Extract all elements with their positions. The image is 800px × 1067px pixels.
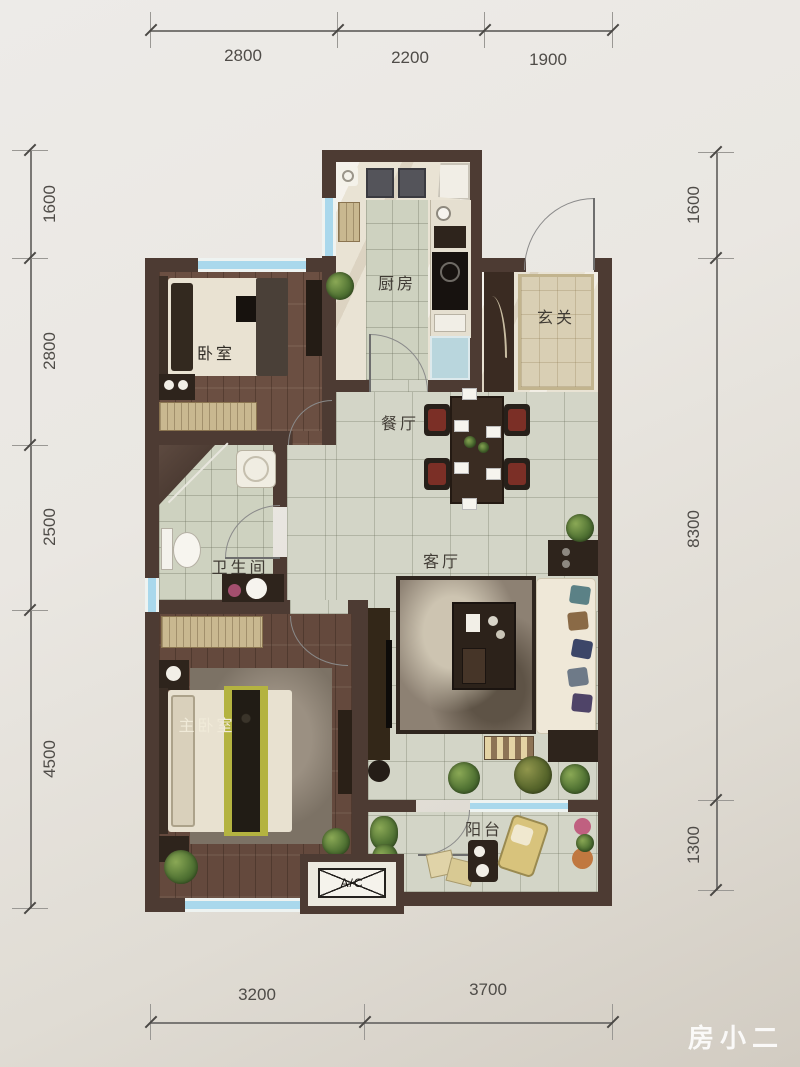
- dim-tick: [12, 610, 48, 611]
- toilet-bowl: [173, 532, 201, 568]
- side-table-knob: [562, 548, 570, 556]
- place-setting: [462, 388, 477, 400]
- stove-burner: [366, 168, 394, 198]
- sofa-pillow: [567, 667, 589, 688]
- dim-tick: [484, 12, 485, 48]
- toilet-tank: [161, 528, 173, 570]
- bedroom-window: [198, 258, 306, 272]
- dim-bottom-2: 3700: [469, 980, 507, 1000]
- watermark: 房小二: [688, 1018, 784, 1055]
- dim-left-3: 2500: [40, 508, 60, 546]
- master-plant: [322, 828, 350, 856]
- ac-unit-label: A/C: [340, 876, 363, 890]
- master-bed-headboard: [159, 688, 168, 834]
- dim-tick: [12, 150, 48, 151]
- balcony-cup: [476, 864, 489, 877]
- dim-tick: [698, 258, 734, 259]
- dim-right-1: 1600: [684, 186, 704, 224]
- master-door-threshold: [290, 600, 348, 614]
- nightstand-lamp: [166, 666, 181, 681]
- nightstand-cup: [178, 380, 188, 390]
- place-setting: [486, 468, 501, 480]
- room-label-dining: 餐厅: [381, 410, 419, 434]
- sofa-side-table-bottom: [548, 730, 598, 762]
- master-plant: [164, 850, 198, 884]
- sofa-pillow: [567, 611, 589, 631]
- wall-balcony-top-right: [568, 800, 598, 812]
- balcony-plant-right: [576, 834, 594, 852]
- side-table-knob: [562, 560, 570, 568]
- dim-left-2: 2800: [40, 332, 60, 370]
- bedroom-tv-panel: [306, 280, 322, 356]
- dim-bottom-1: 3200: [238, 985, 276, 1005]
- dim-tick: [12, 445, 48, 446]
- kitchen-cart: [338, 202, 360, 242]
- balcony-flower-pink: [574, 818, 591, 835]
- dim-line-left: [30, 150, 32, 908]
- master-runner-pattern: [232, 690, 260, 832]
- bathroom-basin-bowl: [243, 456, 269, 482]
- kitchen-window: [322, 198, 336, 256]
- stove-burner: [398, 168, 426, 198]
- dim-tick: [150, 12, 151, 48]
- coffee-table-decor: [496, 630, 505, 639]
- sofa-side-table-top: [548, 540, 598, 576]
- kitchen-sink-circle: [436, 206, 451, 221]
- dining-table-plant: [478, 442, 489, 453]
- dim-line-bottom: [150, 1022, 612, 1024]
- room-label-kitchen: 厨房: [378, 270, 416, 294]
- dim-top-3: 1900: [529, 50, 567, 70]
- bedroom-wardrobe: [159, 402, 257, 431]
- dim-right-3: 1300: [684, 826, 704, 864]
- sofa-pillow: [571, 638, 594, 659]
- dim-tick: [337, 12, 338, 48]
- dining-chair: [504, 404, 530, 436]
- master-tv-cabinet: [338, 710, 352, 794]
- wall-master-top-left: [145, 600, 290, 614]
- coffee-table-decor: [488, 616, 498, 626]
- wall-kitchen-top: [322, 150, 482, 162]
- dim-line-top: [150, 30, 612, 32]
- bedroom-bed-deco: [236, 296, 256, 322]
- room-label-bedroom: 卧室: [197, 340, 235, 364]
- coffee-table-inset: [462, 648, 486, 684]
- bathroom-window: [145, 578, 159, 612]
- dim-left-4: 4500: [40, 740, 60, 778]
- dining-chair: [504, 458, 530, 490]
- floor-vase: [368, 760, 390, 782]
- dim-right-2: 8300: [684, 510, 704, 548]
- dim-tick: [698, 890, 734, 891]
- dining-table-plant: [464, 436, 476, 448]
- kitchen-mat: [430, 336, 470, 380]
- balcony-window: [470, 800, 568, 812]
- dim-top-1: 2800: [224, 46, 262, 66]
- dim-tick: [12, 258, 48, 259]
- wall-kitchen-bottom-left: [336, 380, 370, 392]
- cooktop-pot: [440, 262, 460, 282]
- sofa-pillow: [569, 585, 591, 606]
- living-plant: [514, 756, 552, 794]
- balcony-cup: [474, 846, 485, 857]
- entry-door-leaf: [593, 198, 595, 270]
- master-bedroom-window: [185, 898, 303, 912]
- dim-left-1: 1600: [40, 185, 60, 223]
- wall-kitchen-right: [470, 150, 482, 272]
- entry-door-arc: [524, 198, 594, 270]
- room-label-bathroom: 卫生间: [211, 554, 268, 578]
- vanity-sink: [246, 578, 267, 599]
- bedroom-plant: [326, 272, 354, 300]
- dim-tick: [612, 1004, 613, 1040]
- wall-balcony-top-left: [352, 800, 416, 812]
- sofa-pillow: [571, 693, 593, 713]
- bedroom-pillows: [171, 283, 193, 371]
- hallway-floor: [287, 445, 336, 612]
- nightstand-cup: [164, 380, 174, 390]
- place-setting: [454, 462, 469, 474]
- living-tv: [386, 640, 392, 728]
- microwave: [434, 226, 466, 248]
- bedroom-bed-headboard: [159, 276, 168, 378]
- dim-tick: [698, 800, 734, 801]
- dim-tick: [698, 152, 734, 153]
- wall-bathroom-top: [145, 431, 292, 445]
- room-label-master-bedroom: 主卧室: [178, 712, 235, 736]
- dim-tick: [364, 1004, 365, 1040]
- kitchen-sink-unit: [438, 163, 470, 200]
- place-setting: [486, 426, 501, 438]
- master-wardrobe: [161, 616, 263, 648]
- kitchen-appliance: [434, 314, 466, 332]
- wall-master-bottom-left: [145, 898, 185, 912]
- place-setting: [454, 420, 469, 432]
- dim-tick: [12, 908, 48, 909]
- kitchen-door-leaf: [369, 334, 371, 392]
- living-plant: [560, 764, 590, 794]
- dining-chair: [424, 404, 450, 436]
- dim-tick: [612, 12, 613, 48]
- washer-icon-drum: [342, 170, 354, 182]
- floor-plan-page: 2800 2200 1900 3200 3700 1600 2800 2500 …: [0, 0, 800, 1067]
- wall-right: [598, 258, 612, 906]
- wall-kitchen-entry-divider: [470, 272, 482, 392]
- living-plant: [566, 514, 594, 542]
- bedroom-blanket: [256, 278, 288, 376]
- place-setting: [462, 498, 477, 510]
- room-label-balcony: 阳台: [465, 816, 503, 840]
- room-label-entry: 玄关: [537, 304, 575, 328]
- ac-unit-box: A/C: [318, 868, 386, 898]
- entry-rug: [518, 274, 594, 390]
- dining-table: [450, 396, 504, 504]
- room-label-living: 客厅: [423, 548, 461, 572]
- living-plant: [448, 762, 480, 794]
- dining-chair: [424, 458, 450, 490]
- wall-entry-top-left: [470, 258, 526, 272]
- dim-top-2: 2200: [391, 48, 429, 68]
- dim-tick: [150, 1004, 151, 1040]
- vanity-flower: [228, 584, 241, 597]
- dim-line-right: [716, 152, 718, 890]
- coffee-table-tray: [466, 614, 480, 632]
